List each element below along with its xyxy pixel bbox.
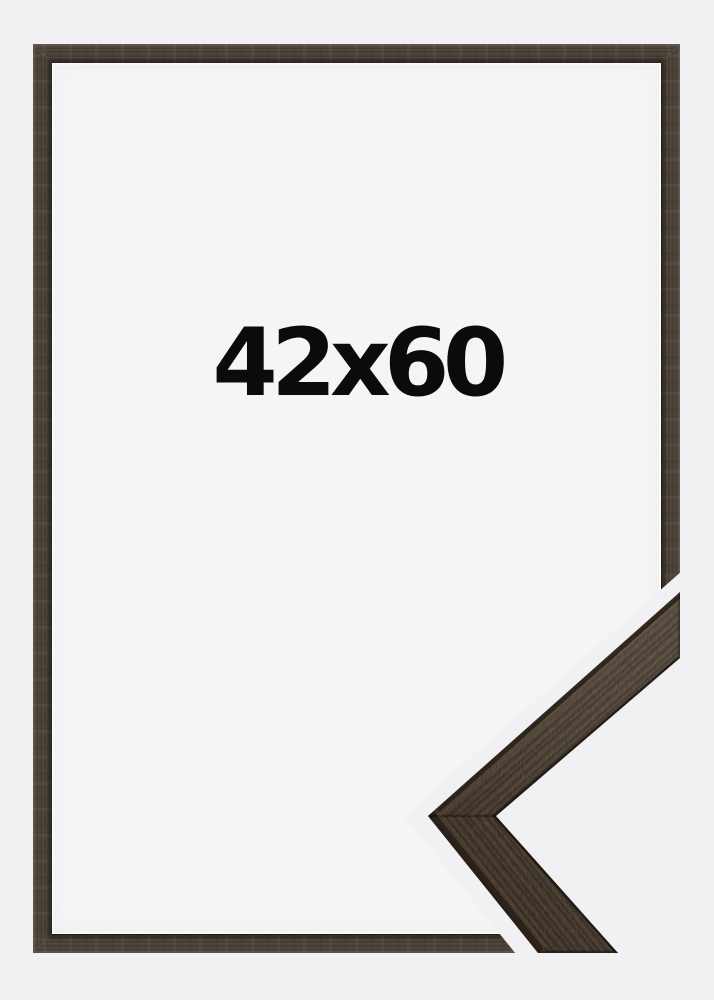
picture-frame: [33, 44, 680, 953]
frame-rail-bottom: [33, 934, 680, 953]
size-label: 42x60: [0, 317, 714, 411]
frame-rail-left: [33, 44, 52, 953]
frame-rail-top: [33, 44, 680, 63]
product-image: 42x60: [0, 0, 714, 1000]
frame-rail-right: [661, 44, 680, 953]
frame-opening: [52, 63, 661, 934]
